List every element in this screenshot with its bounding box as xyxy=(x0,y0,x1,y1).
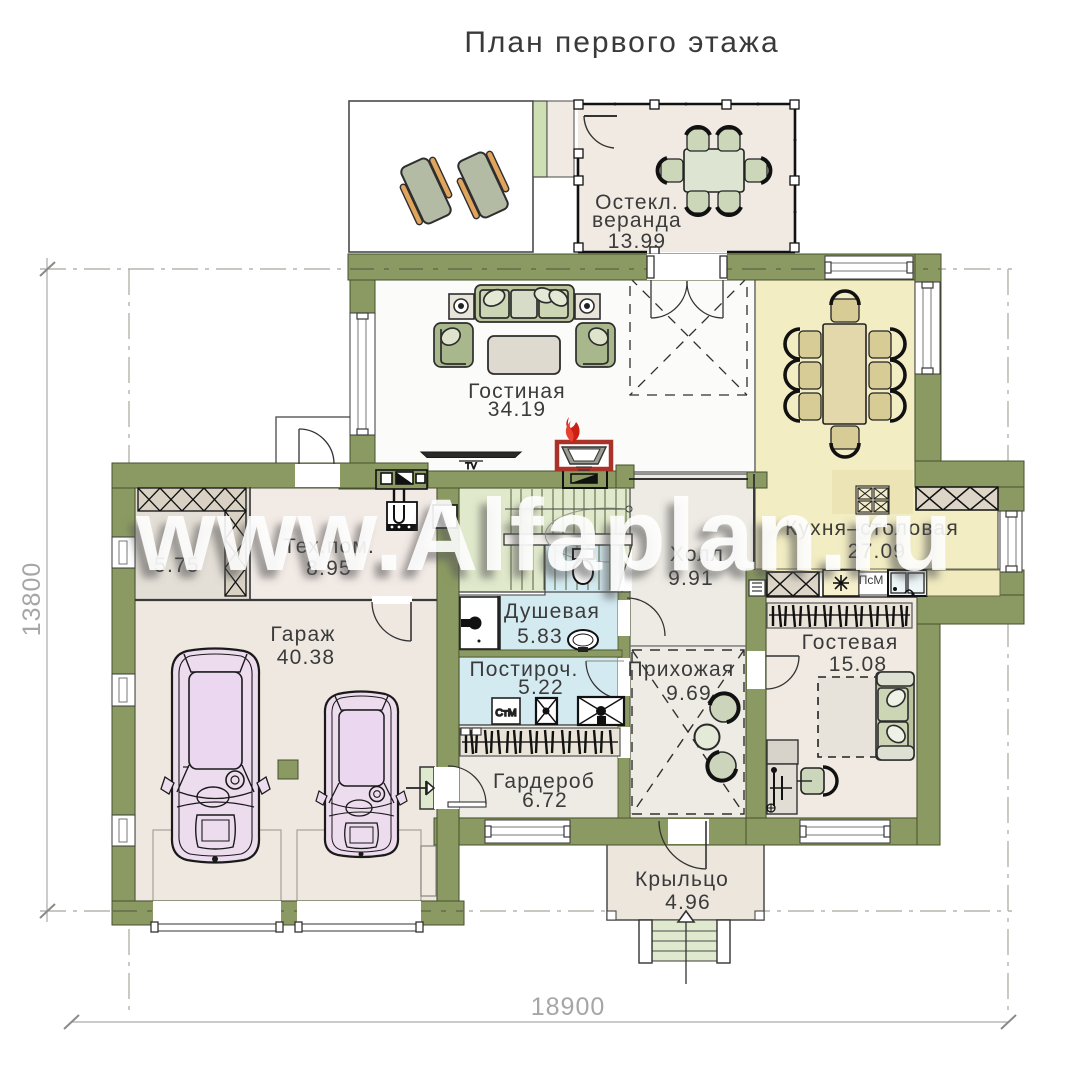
svg-text:Гараж: Гараж xyxy=(270,623,335,646)
svg-text:34.19: 34.19 xyxy=(488,398,547,421)
svg-text:Гостевая: Гостевая xyxy=(802,631,899,654)
svg-text:Прихожая: Прихожая xyxy=(628,658,735,681)
svg-text:40.38: 40.38 xyxy=(277,646,336,669)
svg-text:Душевая: Душевая xyxy=(504,600,600,623)
svg-text:веранда: веранда xyxy=(592,209,682,232)
svg-text:13800: 13800 xyxy=(18,562,46,637)
svg-text:6.72: 6.72 xyxy=(522,789,568,812)
svg-text:5.22: 5.22 xyxy=(518,676,564,699)
svg-text:www.Alfaplan.ru: www.Alfaplan.ru xyxy=(135,478,954,592)
svg-text:9.69: 9.69 xyxy=(666,682,712,705)
svg-text:5.83: 5.83 xyxy=(517,625,563,648)
svg-text:TV: TV xyxy=(465,461,477,471)
svg-text:18900: 18900 xyxy=(531,993,606,1021)
svg-text:План первого этажа: План первого этажа xyxy=(464,26,779,59)
svg-text:13.99: 13.99 xyxy=(608,230,667,253)
svg-text:Крыльцо: Крыльцо xyxy=(635,868,729,891)
svg-text:15.08: 15.08 xyxy=(829,653,888,676)
svg-text:4.96: 4.96 xyxy=(665,891,711,914)
svg-text:СтМ: СтМ xyxy=(495,707,516,719)
